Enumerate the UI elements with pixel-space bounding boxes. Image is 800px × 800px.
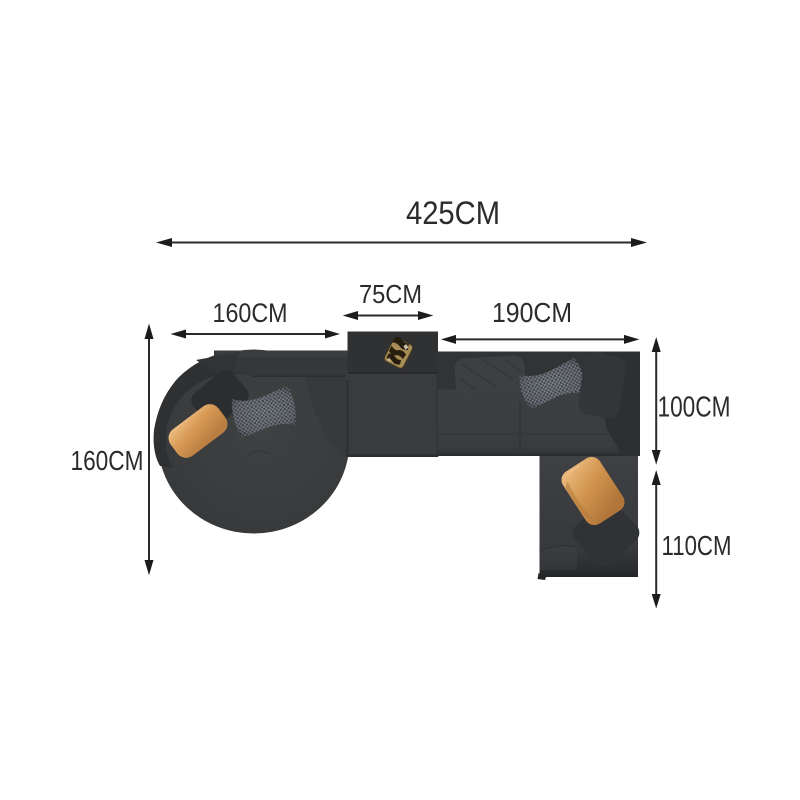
svg-text:160CM: 160CM	[71, 445, 144, 476]
svg-text:100CM: 100CM	[658, 392, 731, 424]
svg-text:190CM: 190CM	[492, 297, 572, 328]
svg-text:110CM: 110CM	[662, 530, 732, 561]
svg-text:425CM: 425CM	[406, 195, 500, 231]
svg-text:160CM: 160CM	[213, 298, 288, 328]
svg-text:75CM: 75CM	[359, 279, 422, 309]
